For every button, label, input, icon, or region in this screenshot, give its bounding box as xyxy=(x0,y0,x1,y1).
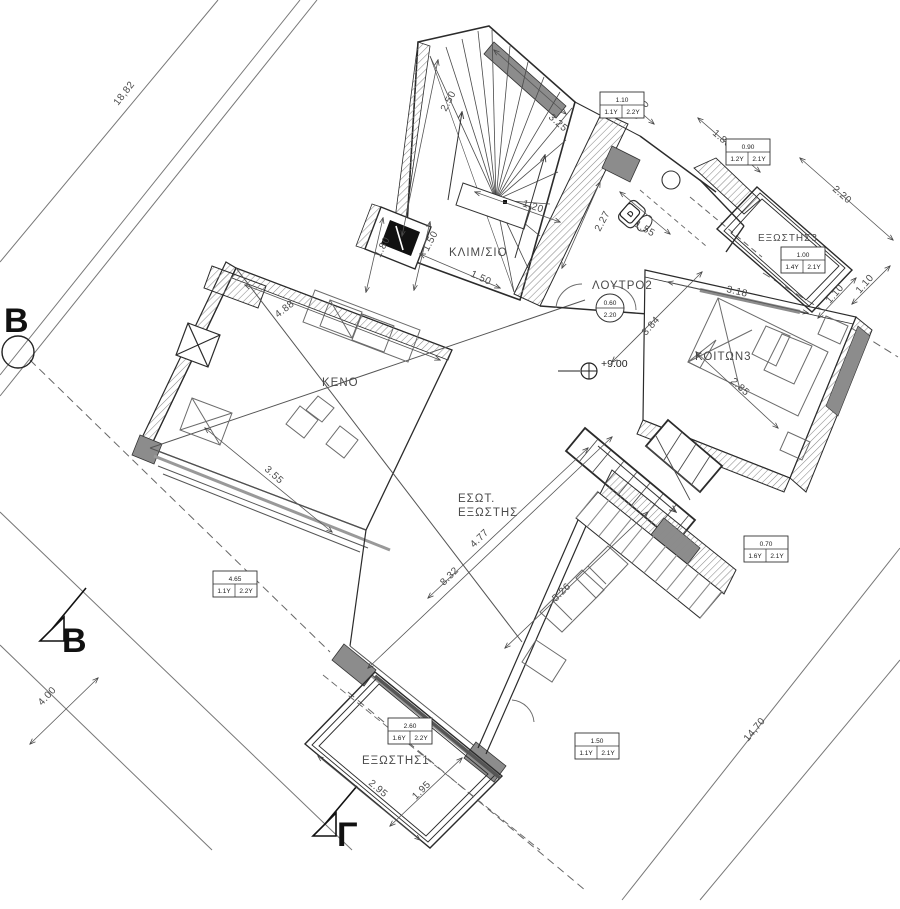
tag-a: 1.1Υ xyxy=(217,588,231,595)
label-void: ΚΕΝΟ xyxy=(322,377,359,389)
label-bedroom: ΚΟΙΤΩΝ3 xyxy=(695,351,752,363)
loungers xyxy=(522,546,628,682)
tag-b: 2.2Υ xyxy=(626,109,640,116)
floor-plan-canvas: B B Γ xyxy=(0,0,900,909)
tag-a: 1.6Υ xyxy=(392,735,406,742)
tag-b: 2.2Υ xyxy=(414,735,428,742)
label-balcony3: ΕΞΩΣΤΗΣ3 xyxy=(758,233,818,244)
tag-b: 2.1Υ xyxy=(601,750,615,757)
tag-balcony1: 2.60 1.6Υ 2.2Υ xyxy=(388,718,432,744)
tag-a: 1.1Υ xyxy=(579,750,593,757)
section-marker-bottom: Γ xyxy=(313,786,357,854)
tag-b: 2.1Υ xyxy=(807,264,821,271)
dim-ter-a: 4.77 xyxy=(468,527,491,550)
section-letter-b-left: B xyxy=(4,302,29,340)
lot-line-se-b xyxy=(700,660,900,900)
label-bathroom: ΛΟΥΤΡΟ2 xyxy=(592,280,653,292)
section-marker-bottom-left: B xyxy=(40,588,87,660)
lot-line-sw-a xyxy=(0,512,352,850)
circle-tag-top: 0.60 xyxy=(604,300,617,307)
section-letter-gamma: Γ xyxy=(337,816,357,854)
dim-ter-b: 8.32 xyxy=(438,565,461,588)
tag-width: 0.90 xyxy=(742,144,755,151)
tag-a: 1.6Υ xyxy=(748,553,762,560)
dim-site-nw: 18,82 xyxy=(112,79,138,107)
label-stairwell: ΚΛΙΜ/ΣΙΟ xyxy=(449,247,508,259)
terrace-se-wall xyxy=(478,520,586,754)
section-marker-left: B xyxy=(2,302,34,368)
tag-width: 4.65 xyxy=(229,576,242,583)
tag-se-balcony: 0.70 1.6Υ 2.1Υ xyxy=(744,536,788,562)
tag-width: 1.10 xyxy=(616,97,629,104)
section-letter-b: B xyxy=(62,622,87,660)
dim-bath-a: 2.27 xyxy=(593,209,613,233)
dim-bal3-a: 2.20 xyxy=(830,184,853,206)
tag-width: 1.50 xyxy=(591,738,604,745)
circle-tag: 0.60 2.20 xyxy=(596,294,624,322)
tag-a: 1.4Υ xyxy=(785,264,799,271)
dim-bath-b: 1.55 xyxy=(633,219,657,239)
tag-b: 2.1Υ xyxy=(770,553,784,560)
tag-width: 1.00 xyxy=(797,252,810,259)
level-mark: +9.00 xyxy=(558,358,628,379)
lot-line-sw-b xyxy=(0,645,212,850)
label-balcony1: ΕΞΩΣΤΗΣ1 xyxy=(362,755,430,767)
label-inner-balcony-2: ΕΞΩΣΤΗΣ xyxy=(458,507,518,519)
tag-width: 2.60 xyxy=(404,723,417,730)
tag-balcony3-top: 0.90 1.2Υ 2.1Υ xyxy=(726,139,770,165)
tag-balcony1-right: 1.50 1.1Υ 2.1Υ xyxy=(575,733,619,759)
tag-b: 2.2Υ xyxy=(239,588,253,595)
tag-a: 1.2Υ xyxy=(730,156,744,163)
tag-stair-top: 1.10 1.1Υ 2.2Υ xyxy=(600,92,644,118)
tag-width: 0.70 xyxy=(760,541,773,548)
dim-bed-c: 1.10 xyxy=(854,273,876,296)
floor-plan-svg: B B Γ xyxy=(0,0,900,909)
tag-b: 2.1Υ xyxy=(752,156,766,163)
terrace-w-edge xyxy=(350,530,366,646)
tag-balcony3-inner: 1.00 1.4Υ 2.1Υ xyxy=(781,247,825,273)
label-inner-balcony-1: ΕΣΩΤ. xyxy=(458,493,495,505)
dim-bal1-a: 2.95 xyxy=(366,778,390,800)
lot-line-nw xyxy=(0,0,218,262)
tag-a: 1.1Υ xyxy=(604,109,618,116)
circle-tag-bottom: 2.20 xyxy=(604,312,617,319)
washbasin xyxy=(662,171,680,189)
terrace-s-block-a xyxy=(332,644,376,686)
dim-ter-c: 5.26 xyxy=(550,581,573,604)
dim-bal1-b: 1.95 xyxy=(410,779,433,802)
bath-door-arc xyxy=(556,284,582,308)
dim-site-se: 14,70 xyxy=(742,716,768,744)
bath-e-jog-wall xyxy=(694,158,760,214)
dim-site-sw: 4.00 xyxy=(36,685,59,708)
tag-keno-left: 4.65 1.1Υ 2.2Υ xyxy=(213,571,257,597)
